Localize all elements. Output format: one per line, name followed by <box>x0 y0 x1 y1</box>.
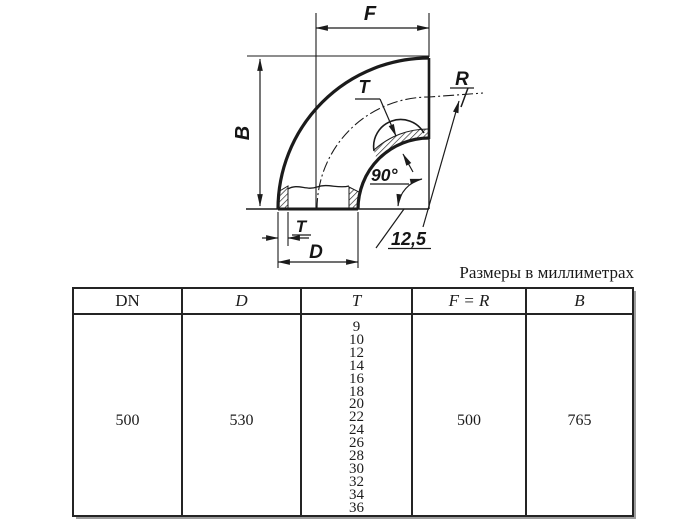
elbow-diagram: F B D T T R 90° 12,5 <box>0 0 700 285</box>
value-b: 765 <box>525 315 632 515</box>
label-T-bottom: T <box>296 217 308 236</box>
radius-tick <box>461 88 468 107</box>
label-B: B <box>232 126 254 140</box>
label-angle: 90° <box>371 165 398 185</box>
elbow-drawing-page: F B D T T R 90° 12,5 Размеры в миллиметр… <box>0 0 700 525</box>
value-f-r: 500 <box>411 315 525 515</box>
label-T-top: T <box>359 77 372 97</box>
dim-angle-arc <box>398 179 422 206</box>
label-D: D <box>309 242 323 263</box>
value-d: 530 <box>181 315 300 515</box>
header-t: T <box>300 289 411 315</box>
value-dn: 500 <box>74 315 181 515</box>
value-t-list: 91012141618202224262830323436 <box>300 315 411 515</box>
label-F: F <box>364 3 377 25</box>
leader-angle <box>403 154 413 172</box>
header-b: B <box>525 289 632 315</box>
dimensions-table: DN D T F = R B 500 530 91012141618202224… <box>72 287 634 517</box>
header-f-r: F = R <box>411 289 525 315</box>
units-note: Размеры в миллиметрах <box>459 263 634 283</box>
header-dn: DN <box>74 289 181 315</box>
t-value: 36 <box>302 502 411 515</box>
header-d: D <box>181 289 300 315</box>
centerline-arc <box>317 93 483 209</box>
label-roughness: 12,5 <box>391 229 427 249</box>
label-R: R <box>455 69 469 90</box>
